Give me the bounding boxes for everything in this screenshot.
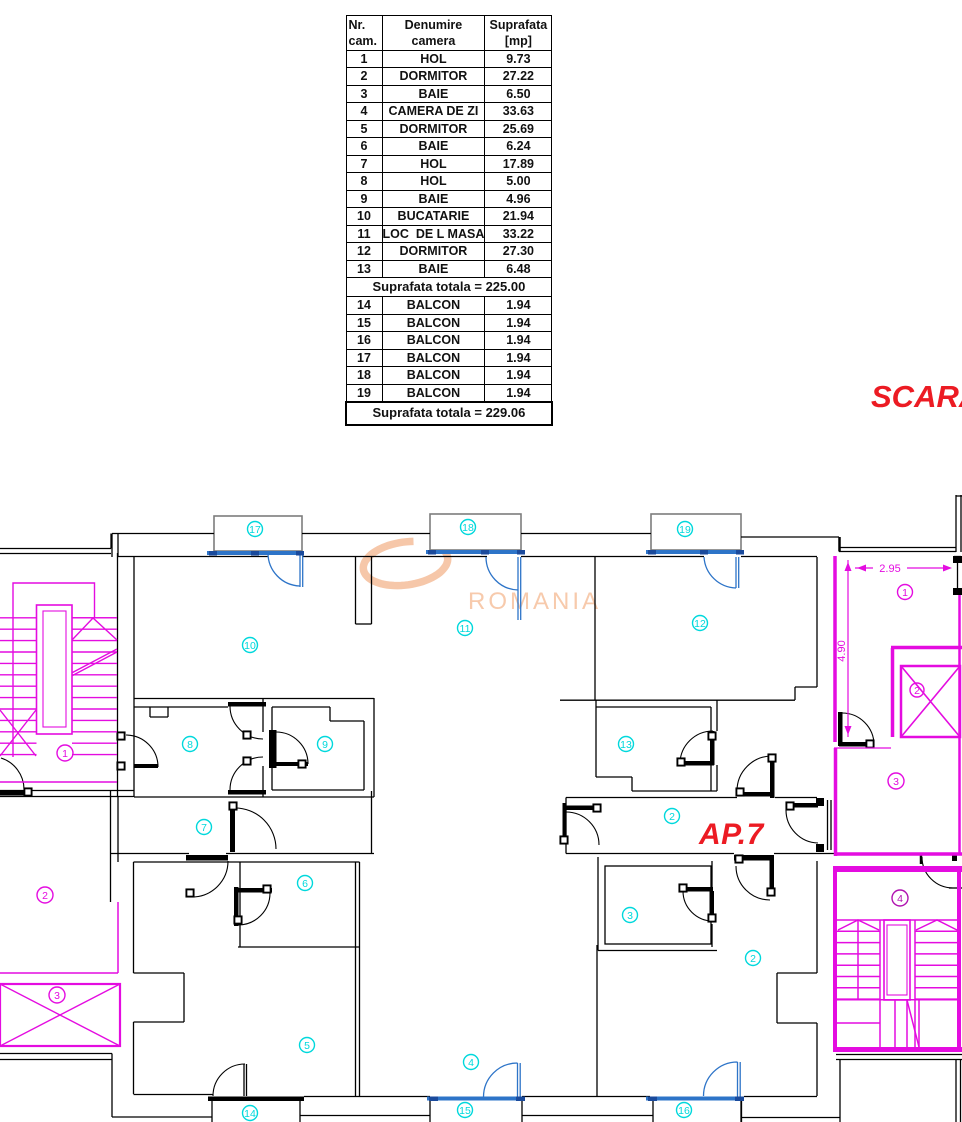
svg-text:11: 11 xyxy=(460,623,471,635)
svg-text:4: 4 xyxy=(468,1057,474,1069)
svg-text:18: 18 xyxy=(462,522,474,534)
svg-text:6: 6 xyxy=(302,878,308,890)
svg-text:3: 3 xyxy=(627,910,633,922)
svg-text:8: 8 xyxy=(187,739,193,751)
svg-text:16: 16 xyxy=(678,1105,690,1117)
svg-text:4: 4 xyxy=(897,893,903,905)
svg-text:3: 3 xyxy=(54,990,60,1002)
svg-text:4.90: 4.90 xyxy=(836,640,848,661)
svg-text:1: 1 xyxy=(902,587,908,599)
svg-text:19: 19 xyxy=(679,524,691,536)
svg-text:2: 2 xyxy=(914,685,920,697)
svg-text:5: 5 xyxy=(304,1040,310,1052)
svg-text:9: 9 xyxy=(322,739,328,751)
svg-text:1: 1 xyxy=(62,748,68,760)
svg-text:15: 15 xyxy=(459,1105,471,1117)
svg-text:2.95: 2.95 xyxy=(879,563,900,575)
svg-text:17: 17 xyxy=(249,524,261,536)
svg-text:13: 13 xyxy=(620,739,632,751)
svg-text:2: 2 xyxy=(750,953,756,965)
svg-text:2: 2 xyxy=(42,890,48,902)
svg-text:10: 10 xyxy=(244,640,256,652)
svg-text:2: 2 xyxy=(669,811,675,823)
svg-text:7: 7 xyxy=(201,822,207,834)
svg-text:14: 14 xyxy=(244,1108,256,1120)
svg-text:3: 3 xyxy=(893,776,899,788)
svg-text:12: 12 xyxy=(694,618,706,630)
